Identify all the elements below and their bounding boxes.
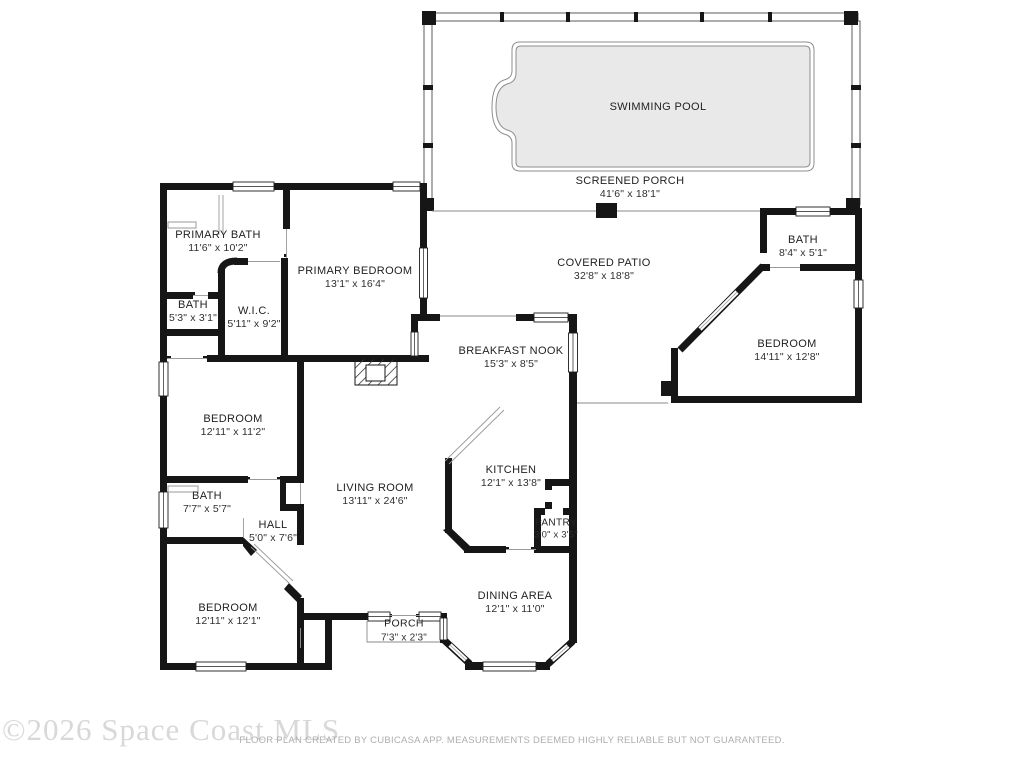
room-name: W.I.C.: [227, 304, 280, 318]
room-name: BATH: [169, 298, 217, 312]
room-name: DINING AREA: [478, 589, 553, 603]
room-name: KITCHEN: [481, 463, 541, 477]
room-dims: 3'0" x 3'5": [534, 529, 578, 541]
room-dims: 5'3" x 3'1": [169, 312, 217, 326]
room-name: BEDROOM: [201, 412, 266, 426]
room-dims: 12'1" x 11'0": [478, 603, 553, 617]
room-dims: 12'1" x 13'8": [481, 477, 541, 491]
room-label-living-room: LIVING ROOM 13'11" x 24'6": [336, 481, 413, 509]
room-label-primary-bath: PRIMARY BATH 11'6" x 10'2": [175, 228, 261, 256]
room-label-porch: PORCH 7'3" x 2'3": [381, 618, 427, 645]
room-dims: 7'7" x 5'7": [183, 503, 231, 517]
room-dims: 13'1" x 16'4": [298, 278, 413, 292]
room-name: BEDROOM: [195, 601, 260, 615]
room-name: COVERED PATIO: [557, 256, 650, 270]
room-name: PANTRY: [534, 516, 578, 529]
room-dims: 11'6" x 10'2": [175, 242, 261, 256]
room-label-breakfast-nook: BREAKFAST NOOK 15'3" x 8'5": [459, 344, 564, 372]
room-dims: 13'11" x 24'6": [336, 495, 413, 509]
room-label-bedroom-bottom: BEDROOM 12'11" x 12'1": [195, 601, 260, 629]
room-label-bedroom-wing: BEDROOM 14'11" x 12'8": [754, 337, 819, 365]
room-label-hall: HALL 5'0" x 7'6": [249, 518, 297, 546]
room-name: LIVING ROOM: [336, 481, 413, 495]
floor-plan-drawing: [0, 0, 1024, 768]
room-name: BATH: [779, 233, 827, 247]
room-name: BREAKFAST NOOK: [459, 344, 564, 358]
room-label-bath-small: BATH 5'3" x 3'1": [169, 298, 217, 326]
room-label-bath-hall: BATH 7'7" x 5'7": [183, 489, 231, 517]
room-dims: 15'3" x 8'5": [459, 358, 564, 372]
room-name: BEDROOM: [754, 337, 819, 351]
room-name: SWIMMING POOL: [610, 101, 707, 113]
room-name: BATH: [183, 489, 231, 503]
room-name: PRIMARY BATH: [175, 228, 261, 242]
room-name: PRIMARY BEDROOM: [298, 264, 413, 278]
room-dims: 8'4" x 5'1": [779, 247, 827, 261]
room-dims: 14'11" x 12'8": [754, 351, 819, 365]
room-dims: 32'8" x 18'8": [557, 270, 650, 284]
room-label-screened-porch: SCREENED PORCH 41'6" x 18'1": [576, 174, 685, 202]
room-dims: 41'6" x 18'1": [576, 188, 685, 202]
room-label-primary-bedroom: PRIMARY BEDROOM 13'1" x 16'4": [298, 264, 413, 292]
room-label-wic: W.I.C. 5'11" x 9'2": [227, 304, 280, 332]
room-label-bedroom-mid: BEDROOM 12'11" x 11'2": [201, 412, 266, 440]
room-dims: 7'3" x 2'3": [381, 631, 427, 644]
room-dims: 12'11" x 12'1": [195, 615, 260, 629]
patio-post: [596, 203, 617, 218]
room-label-swimming-pool: SWIMMING POOL: [610, 100, 707, 114]
room-dims: 5'0" x 7'6": [249, 532, 297, 546]
room-name: HALL: [249, 518, 297, 532]
room-dims: 12'11" x 11'2": [201, 426, 266, 440]
floor-plan-canvas: SWIMMING POOL SCREENED PORCH 41'6" x 18'…: [0, 0, 1024, 768]
room-label-bath-wing: BATH 8'4" x 5'1": [779, 233, 827, 261]
room-name: SCREENED PORCH: [576, 174, 685, 188]
room-label-kitchen: KITCHEN 12'1" x 13'8": [481, 463, 541, 491]
room-name: PORCH: [381, 618, 427, 632]
footer-disclaimer: FLOOR PLAN CREATED BY CUBICASA APP. MEAS…: [239, 735, 784, 746]
room-label-covered-patio: COVERED PATIO 32'8" x 18'8": [557, 256, 650, 284]
room-label-dining-area: DINING AREA 12'1" x 11'0": [478, 589, 553, 617]
room-label-pantry: PANTRY 3'0" x 3'5": [534, 516, 578, 541]
room-dims: 5'11" x 9'2": [227, 318, 280, 332]
